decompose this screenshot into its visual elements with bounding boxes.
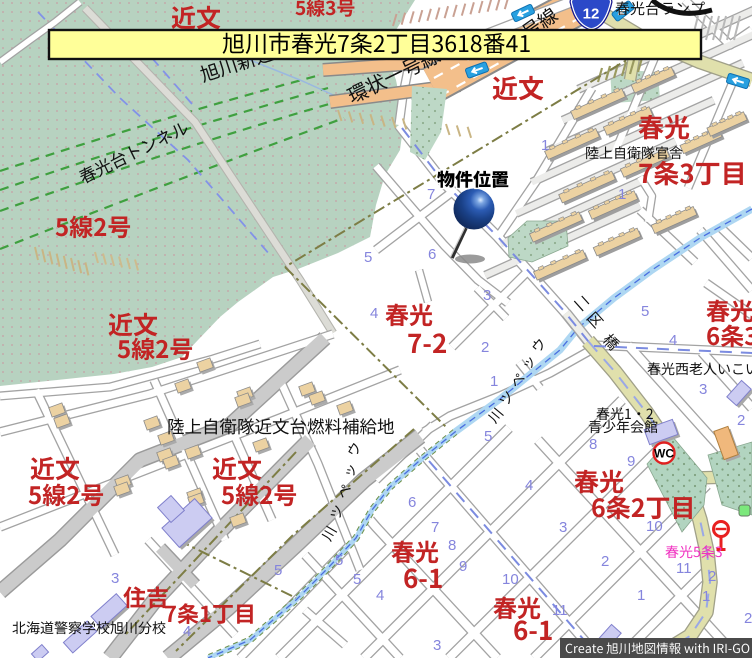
- svg-text:2: 2: [708, 568, 716, 585]
- svg-text:1: 1: [541, 137, 549, 154]
- svg-text:5: 5: [364, 249, 372, 266]
- svg-text:6: 6: [408, 494, 416, 511]
- svg-text:5: 5: [484, 428, 492, 445]
- svg-text:3: 3: [111, 570, 119, 587]
- svg-text:4: 4: [376, 587, 384, 604]
- svg-text:12: 12: [583, 6, 600, 23]
- svg-text:10: 10: [502, 571, 519, 588]
- svg-text:1: 1: [490, 373, 498, 390]
- svg-text:4: 4: [183, 623, 191, 640]
- svg-text:3: 3: [483, 287, 491, 304]
- svg-text:5: 5: [641, 303, 649, 320]
- svg-text:2: 2: [744, 610, 752, 627]
- svg-text:8: 8: [448, 537, 456, 554]
- svg-text:9: 9: [627, 453, 635, 470]
- svg-text:4: 4: [669, 332, 677, 349]
- svg-text:7: 7: [431, 519, 439, 536]
- svg-text:5: 5: [353, 571, 361, 588]
- svg-text:7: 7: [427, 186, 435, 203]
- svg-text:9: 9: [459, 558, 467, 575]
- svg-text:10: 10: [646, 518, 663, 535]
- svg-text:5: 5: [274, 562, 282, 579]
- svg-text:3: 3: [433, 637, 441, 654]
- svg-text:1: 1: [618, 186, 626, 203]
- svg-text:11: 11: [552, 602, 568, 619]
- svg-text:5: 5: [335, 552, 343, 569]
- svg-text:1: 1: [637, 587, 645, 604]
- svg-text:4: 4: [370, 305, 378, 322]
- svg-text:11: 11: [676, 560, 692, 577]
- svg-text:2: 2: [601, 553, 609, 570]
- svg-text:1: 1: [702, 588, 710, 605]
- svg-text:8: 8: [589, 436, 597, 453]
- svg-text:2: 2: [737, 412, 745, 429]
- svg-text:2: 2: [481, 339, 489, 356]
- svg-text:6: 6: [428, 246, 436, 263]
- svg-text:4: 4: [525, 477, 533, 494]
- svg-text:3: 3: [559, 519, 567, 536]
- svg-text:3: 3: [699, 381, 707, 398]
- svg-text:WC: WC: [654, 447, 674, 461]
